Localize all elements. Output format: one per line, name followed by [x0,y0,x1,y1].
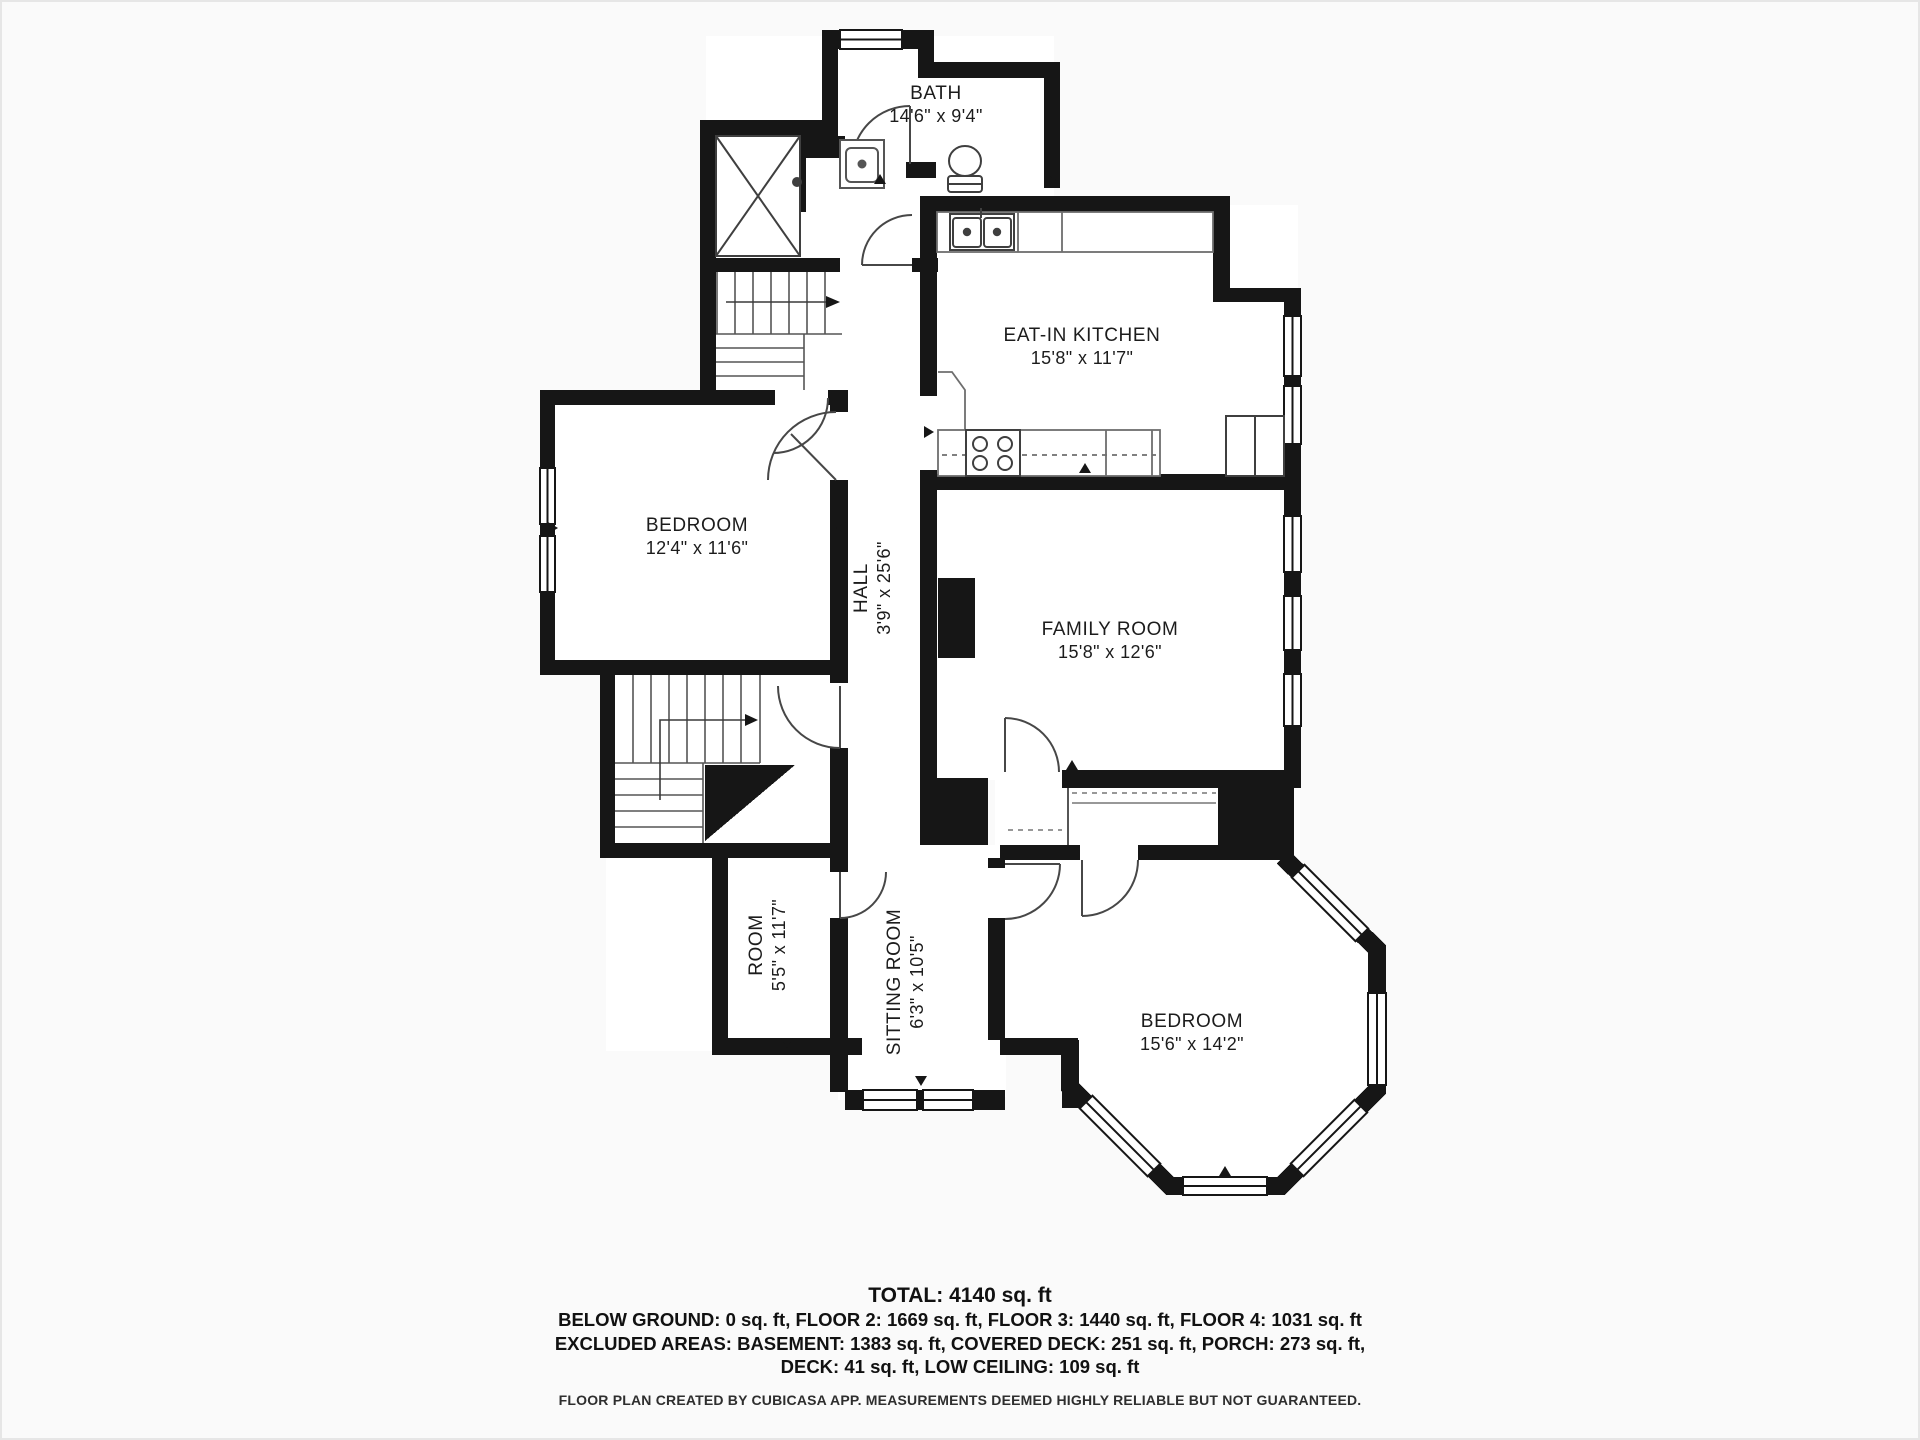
room-label-hall: HALL 3'9" x 25'6" [850,541,896,635]
toilet-icon [948,146,982,192]
floor-plan-page: { "title": "Floor plan", "colors": { "wa… [0,0,1920,1440]
room-label-bedroom-bottom: BEDROOM 15'6" x 14'2" [1140,1010,1244,1056]
room-label-sitting-room: SITTING ROOM 6'3" x 10'5" [883,909,929,1056]
window-icon [863,1090,917,1110]
window-icon [540,468,555,524]
stove-icon [966,430,1020,476]
window-icon [1284,516,1301,572]
floor-plan-drawing [0,0,1920,1440]
disclaimer-footer: FLOOR PLAN CREATED BY CUBICASA APP. MEAS… [210,1392,1710,1408]
room-label-bath: BATH 14'6" x 9'4" [889,82,983,128]
area-summary: TOTAL: 4140 sq. ft BELOW GROUND: 0 sq. f… [210,1284,1710,1379]
window-icon [1284,316,1301,376]
fridge-icon [1226,416,1284,476]
floor-areas-line: BELOW GROUND: 0 sq. ft, FLOOR 2: 1669 sq… [210,1308,1710,1332]
kitchen-sink-icon [950,208,1014,250]
room-label-room-small: ROOM 5'5" x 11'7" [745,899,791,991]
total-area: TOTAL: 4140 sq. ft [210,1284,1710,1308]
window-icon [1284,596,1301,650]
window-icon [1183,1177,1267,1195]
room-label-family-room: FAMILY ROOM 15'8" x 12'6" [1042,618,1179,664]
shower-icon [716,136,801,256]
window-icon [923,1090,973,1110]
window-icon [1368,993,1386,1085]
excluded-areas-line: EXCLUDED AREAS: BASEMENT: 1383 sq. ft, C… [210,1332,1710,1356]
window-icon [1284,386,1301,444]
room-label-kitchen: EAT-IN KITCHEN 15'8" x 11'7" [1004,324,1161,370]
room-label-bedroom-left: BEDROOM 12'4" x 11'6" [646,514,749,560]
excluded-areas-line2: DECK: 41 sq. ft, LOW CEILING: 109 sq. ft [210,1355,1710,1379]
window-icon [540,536,555,592]
window-icon [840,30,902,49]
window-icon [1284,674,1301,726]
